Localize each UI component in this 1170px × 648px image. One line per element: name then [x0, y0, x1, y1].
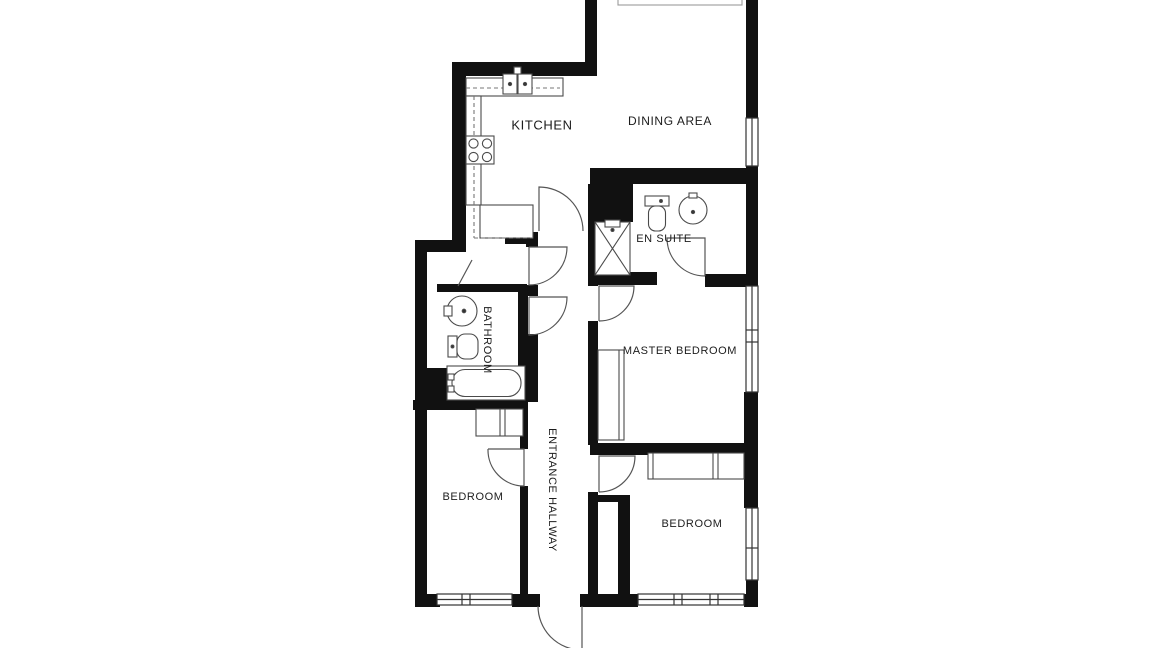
floor-plan-page: KITCHEN DINING AREA EN SUITE MASTER BEDR…	[0, 0, 1170, 648]
master-door	[599, 286, 634, 321]
ensuite-toilet	[645, 196, 669, 231]
bedroom2-label: BEDROOM	[661, 518, 722, 530]
bedroom1-label: BEDROOM	[442, 491, 503, 503]
master-bedroom-label: MASTER BEDROOM	[623, 345, 737, 357]
bathroom-toilet	[448, 334, 478, 359]
entrance-hallway-label: ENTRANCE HALLWAY	[546, 428, 558, 552]
stove	[466, 136, 494, 164]
bathroom-sink	[444, 296, 477, 326]
kitchen-door	[539, 187, 583, 231]
ensuite-sink	[679, 193, 707, 224]
nook-door-leaf	[458, 260, 472, 286]
bathroom-door	[529, 297, 567, 335]
entrance-door	[538, 606, 582, 648]
ensuite-label: EN SUITE	[636, 233, 692, 245]
hall-closet-door	[529, 247, 567, 285]
floor-plan-drawing	[0, 0, 1170, 648]
bathroom-label: BATHROOM	[481, 306, 493, 374]
dining-area-label: DINING AREA	[628, 114, 712, 128]
bedroom2-door	[599, 456, 635, 492]
bedroom1-wardrobe	[476, 409, 523, 436]
master-wardrobe	[598, 350, 624, 440]
bedroom1-door	[488, 449, 524, 486]
bedroom2-wardrobe	[648, 453, 744, 479]
dining-table	[618, 0, 742, 5]
kitchen-label: KITCHEN	[511, 118, 572, 133]
shower	[595, 220, 630, 275]
